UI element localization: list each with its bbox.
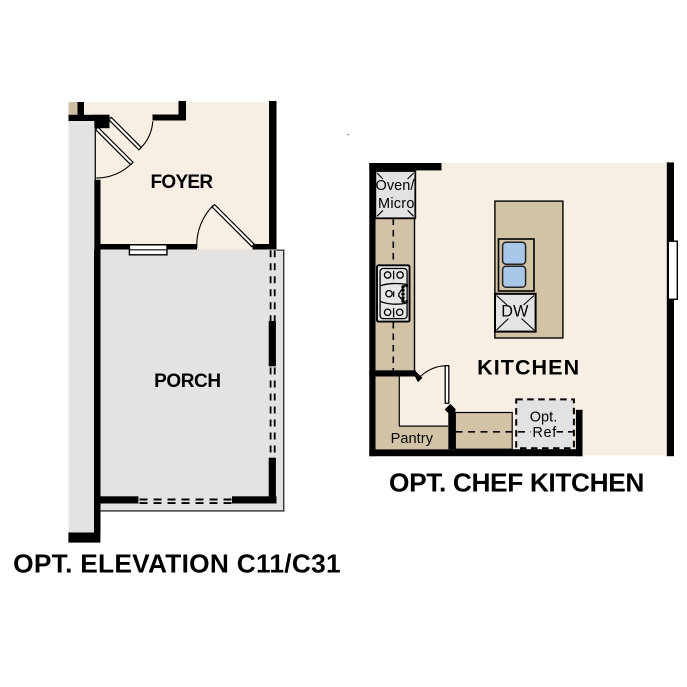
svg-text:DW: DW <box>501 302 529 320</box>
svg-text:PORCH: PORCH <box>154 371 221 392</box>
svg-text:KITCHEN: KITCHEN <box>477 355 579 379</box>
svg-text:Ref: Ref <box>532 425 557 441</box>
svg-text:Pantry: Pantry <box>391 431 434 447</box>
svg-text:FOYER: FOYER <box>151 172 214 193</box>
svg-text:Micro: Micro <box>378 196 414 212</box>
svg-text:Oven/: Oven/ <box>376 178 416 194</box>
svg-text:OPT. CHEF KITCHEN: OPT. CHEF KITCHEN <box>389 468 644 498</box>
svg-text:Opt.: Opt. <box>530 409 558 425</box>
svg-text:OPT. ELEVATION C11/C31: OPT. ELEVATION C11/C31 <box>13 549 341 579</box>
